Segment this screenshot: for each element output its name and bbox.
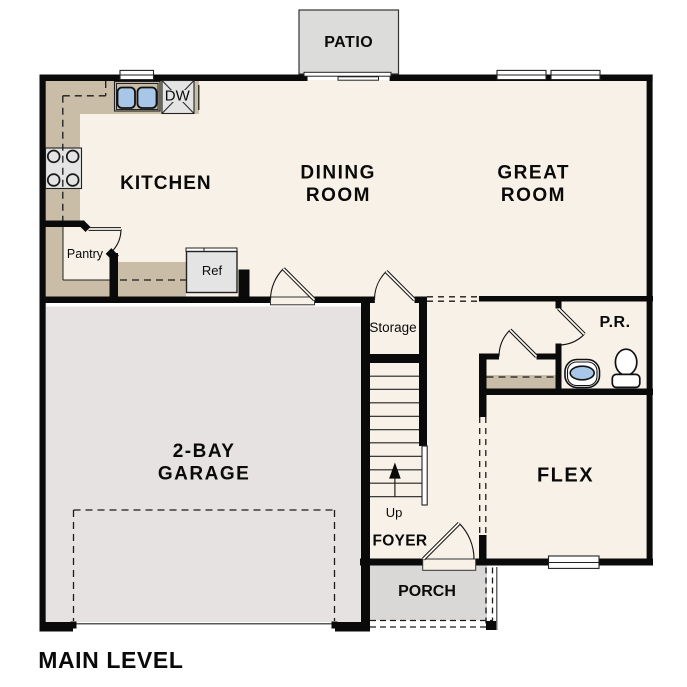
svg-text:FOYER: FOYER — [372, 533, 427, 550]
svg-text:Pantry: Pantry — [67, 247, 104, 261]
svg-text:Up: Up — [386, 505, 403, 520]
svg-text:KITCHEN: KITCHEN — [120, 173, 211, 194]
svg-text:MAIN LEVEL: MAIN LEVEL — [38, 647, 183, 673]
svg-text:Ref: Ref — [202, 263, 223, 278]
svg-text:ROOM: ROOM — [501, 185, 566, 206]
svg-text:DW: DW — [165, 88, 191, 105]
svg-text:P.R.: P.R. — [599, 314, 630, 331]
svg-text:GREAT: GREAT — [497, 162, 570, 183]
svg-text:FLEX: FLEX — [537, 464, 594, 486]
svg-text:GARAGE: GARAGE — [158, 463, 250, 484]
svg-text:DINING: DINING — [300, 162, 376, 183]
svg-text:ROOM: ROOM — [306, 185, 371, 206]
svg-text:PATIO: PATIO — [324, 34, 373, 51]
svg-text:Storage: Storage — [369, 320, 416, 335]
svg-text:2-BAY: 2-BAY — [173, 441, 236, 462]
svg-text:PORCH: PORCH — [398, 583, 456, 600]
